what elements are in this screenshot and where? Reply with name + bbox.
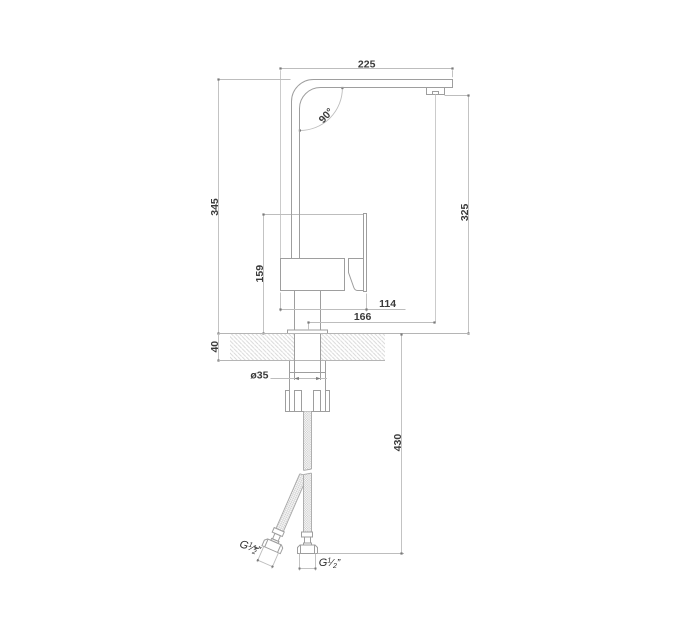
svg-text:ø35: ø35 — [250, 370, 268, 382]
svg-text:159: 159 — [254, 265, 266, 283]
svg-text:325: 325 — [459, 203, 471, 221]
svg-text:166: 166 — [354, 311, 372, 323]
svg-text:225: 225 — [358, 58, 376, 70]
svg-text:40: 40 — [209, 341, 221, 353]
svg-text:430: 430 — [392, 434, 404, 452]
svg-text:114: 114 — [379, 298, 396, 310]
svg-text:345: 345 — [209, 198, 221, 216]
